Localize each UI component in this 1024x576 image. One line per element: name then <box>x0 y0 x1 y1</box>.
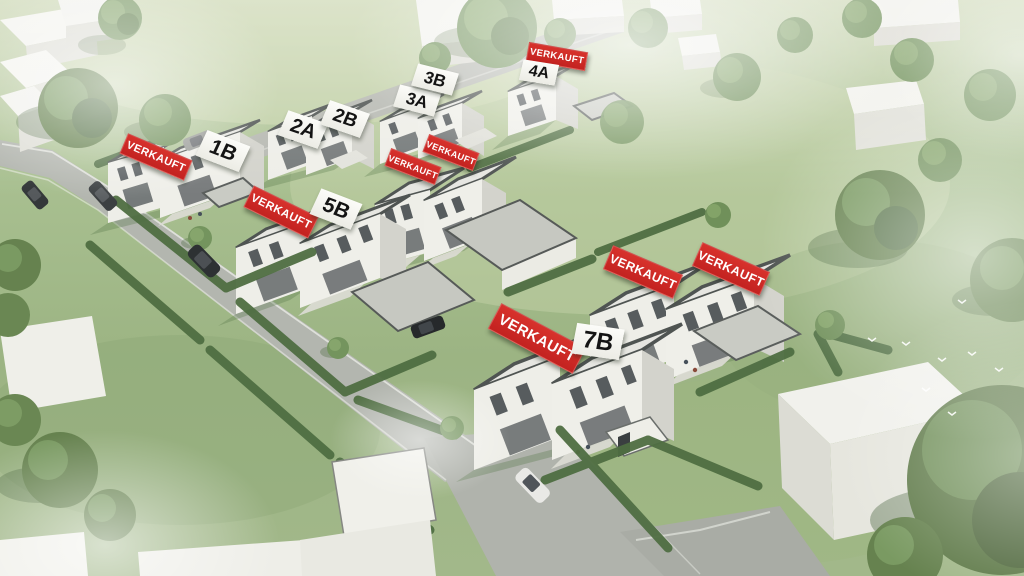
sold-banner-1a: VERKAUFT <box>119 133 192 181</box>
unit-tag-2b: 2B <box>320 100 370 138</box>
unit-tag-2a: 2A <box>278 110 328 149</box>
sold-banner-7a: VERKAUFT <box>488 303 586 374</box>
unit-tag-1b: 1B <box>196 130 251 172</box>
aerial-site-rendering: VERKAUFT 1B 2A 2B 3A 3B VERKAUFT 4A VERK… <box>0 0 1024 576</box>
sold-banner-5a: VERKAUFT <box>243 185 318 238</box>
unit-tag-5b: 5B <box>310 188 363 229</box>
unit-tag-7b: 7B <box>571 323 624 360</box>
sold-banner-8a: VERKAUFT <box>603 245 683 299</box>
sold-banner-8b: VERKAUFT <box>692 242 770 296</box>
unit-tag-4a: 4A <box>519 59 559 85</box>
label-layer: VERKAUFT 1B 2A 2B 3A 3B VERKAUFT 4A VERK… <box>0 0 1024 576</box>
